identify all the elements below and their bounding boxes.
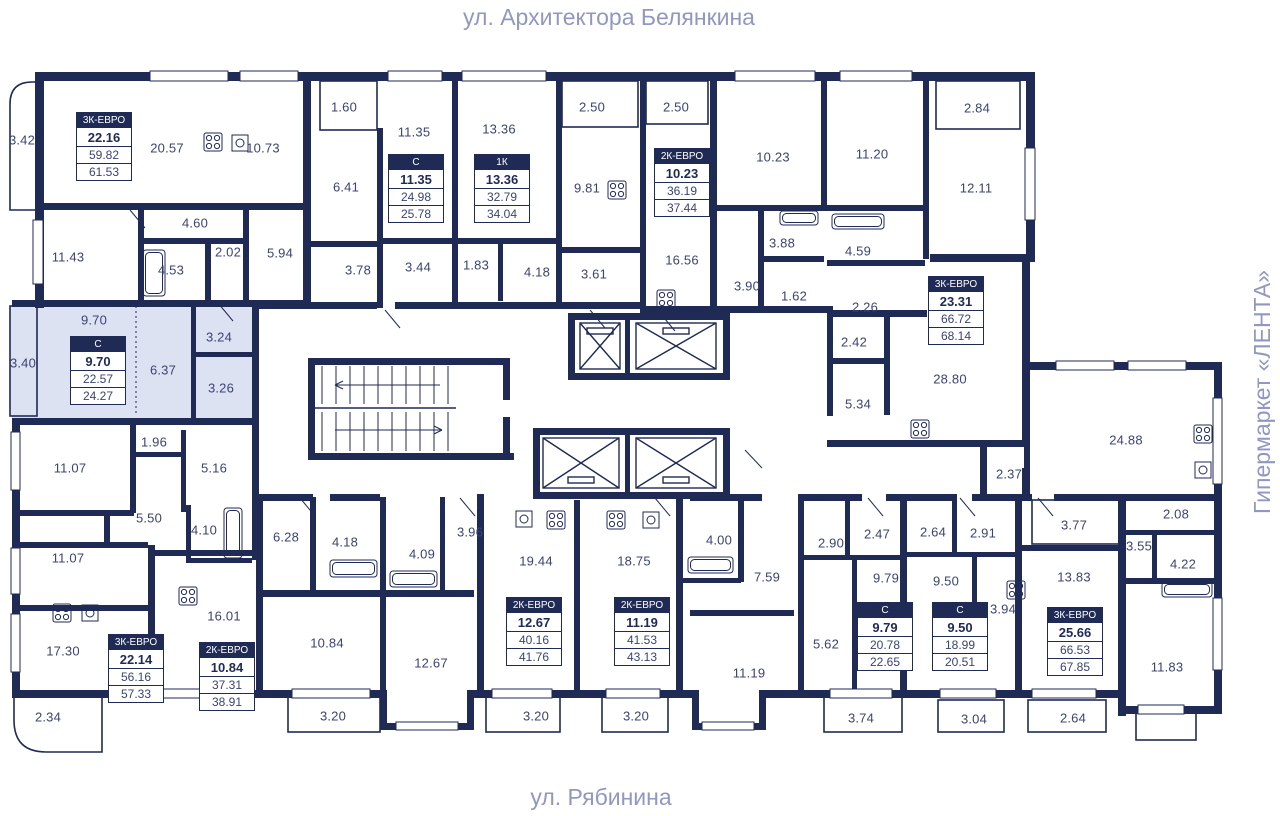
room-area-label: 3.96 — [457, 525, 483, 540]
room-area-label: 1.83 — [463, 258, 489, 273]
room-area-label: 10.84 — [310, 636, 344, 651]
room-area-label: 1.60 — [331, 100, 357, 115]
apartment-total-area: 57.33 — [109, 685, 163, 702]
apartment-living-area: 11.35 — [389, 170, 443, 188]
staircase — [315, 366, 456, 451]
apartment-card[interactable]: 3К-ЕВРО22.1456.1657.33 — [108, 634, 164, 703]
apartment-living-area: 23.31 — [929, 292, 983, 310]
room-area-label: 4.10 — [191, 523, 217, 538]
apartment-living-area: 13.36 — [475, 170, 529, 188]
room-area-label: 2.08 — [1163, 507, 1189, 522]
apartment-card[interactable]: С9.7920.7822.65 — [857, 602, 913, 671]
room-area-label: 6.37 — [150, 363, 176, 378]
room-area-label: 2.64 — [1060, 711, 1086, 726]
apartment-area: 40.16 — [507, 631, 561, 648]
room-area-label: 3.74 — [848, 711, 874, 726]
room-area-label: 7.59 — [754, 570, 780, 585]
room-area-label: 2.84 — [964, 101, 990, 116]
room-area-label: 11.43 — [52, 250, 85, 265]
room-area-label: 5.16 — [201, 461, 227, 476]
apartment-area: 18.99 — [933, 636, 987, 653]
room-area-label: 5.62 — [813, 637, 839, 652]
apartment-type: 2К-ЕВРО — [507, 598, 561, 613]
room-area-label: 2.50 — [579, 100, 605, 115]
room-area-label: 3.90 — [734, 279, 760, 294]
apartment-type: 3К-ЕВРО — [109, 635, 163, 650]
apartment-area: 41.53 — [615, 631, 669, 648]
room-area-label: 3.24 — [206, 330, 232, 345]
room-area-label: 3.55 — [1126, 539, 1152, 554]
room-area-label: 28.80 — [933, 372, 967, 387]
apartment-type: 3К-ЕВРО — [77, 113, 131, 128]
apartment-card[interactable]: 3К-ЕВРО25.6666.5367.85 — [1047, 607, 1103, 676]
apartment-total-area: 41.76 — [507, 648, 561, 665]
room-area-label: 4.18 — [524, 265, 550, 280]
apartment-area: 56.16 — [109, 668, 163, 685]
room-area-label: 11.07 — [54, 461, 87, 476]
room-area-label: 2.26 — [852, 300, 878, 315]
apartment-type: 2К-ЕВРО — [200, 643, 254, 658]
room-area-label: 4.53 — [158, 263, 184, 278]
apartment-living-area: 22.14 — [109, 650, 163, 668]
room-area-label: 9.50 — [933, 574, 959, 589]
room-area-label: 3.20 — [523, 709, 549, 724]
apartment-area: 20.78 — [858, 636, 912, 653]
apartment-type: 2К-ЕВРО — [615, 598, 669, 613]
apartment-type: 2К-ЕВРО — [655, 149, 709, 164]
apartment-card[interactable]: 2К-ЕВРО11.1941.5343.13 — [614, 597, 670, 666]
room-area-label: 18.75 — [617, 554, 651, 569]
street-label-bottom: ул. Рябинина — [530, 784, 671, 811]
apartment-living-area: 25.66 — [1048, 623, 1102, 641]
room-area-label: 19.44 — [519, 554, 553, 569]
room-area-label: 10.73 — [246, 141, 280, 156]
room-area-label: 3.44 — [405, 260, 431, 275]
apartment-living-area: 10.23 — [655, 164, 709, 182]
apartment-total-area: 67.85 — [1048, 658, 1102, 675]
room-area-label: 17.30 — [46, 644, 80, 659]
apartment-area: 66.72 — [929, 310, 983, 327]
room-area-label: 1.96 — [141, 435, 167, 450]
room-area-label: 4.60 — [182, 216, 208, 231]
apartment-area: 24.98 — [389, 188, 443, 205]
apartment-total-area: 20.51 — [933, 653, 987, 670]
apartment-card[interactable]: 2К-ЕВРО10.8437.3138.91 — [199, 642, 255, 711]
floor-plan — [0, 0, 1280, 816]
apartment-area: 22.57 — [71, 370, 125, 387]
room-area-label: 2.50 — [663, 100, 689, 115]
apartment-card[interactable]: С11.3524.9825.78 — [388, 154, 444, 223]
apartment-living-area: 22.16 — [77, 128, 131, 146]
room-area-label: 4.18 — [332, 535, 358, 550]
apartment-card[interactable]: 2К-ЕВРО10.2336.1937.44 — [654, 148, 710, 217]
room-area-label: 6.41 — [333, 180, 359, 195]
room-area-label: 5.50 — [136, 511, 162, 526]
apartment-total-area: 25.78 — [389, 205, 443, 222]
landmark-label-right: Гипермаркет «ЛЕНТА» — [1249, 270, 1276, 514]
room-area-label: 3.04 — [961, 712, 987, 727]
apartment-card-selected[interactable]: С9.7022.5724.27 — [70, 336, 126, 405]
room-area-label: 3.77 — [1061, 518, 1087, 533]
apartment-total-area: 38.91 — [200, 693, 254, 710]
room-area-label: 3.42 — [9, 133, 35, 148]
room-area-label: 3.20 — [623, 709, 649, 724]
room-area-label: 9.81 — [574, 181, 600, 196]
room-area-label: 3.94 — [990, 602, 1016, 617]
room-area-label: 9.79 — [873, 571, 899, 586]
room-area-label: 13.36 — [482, 122, 516, 137]
room-area-label: 3.78 — [345, 263, 371, 278]
room-area-label: 1.62 — [781, 289, 807, 304]
apartment-type: 1К — [475, 155, 529, 170]
apartment-card[interactable]: 3К-ЕВРО22.1659.8261.53 — [76, 112, 132, 181]
room-area-label: 11.07 — [52, 551, 85, 566]
room-area-label: 3.26 — [208, 381, 234, 396]
room-area-label: 6.28 — [273, 530, 299, 545]
room-area-label: 5.34 — [845, 397, 871, 412]
room-area-label: 16.56 — [665, 253, 699, 268]
apartment-card[interactable]: С9.5018.9920.51 — [932, 602, 988, 671]
apartment-type: 3К-ЕВРО — [929, 277, 983, 292]
apartment-type: С — [71, 337, 125, 352]
room-area-label: 11.19 — [733, 666, 766, 681]
apartment-area: 32.79 — [475, 188, 529, 205]
apartment-total-area: 34.04 — [475, 205, 529, 222]
room-area-label: 4.00 — [706, 533, 732, 548]
apartment-total-area: 22.65 — [858, 653, 912, 670]
room-area-label: 13.83 — [1057, 570, 1091, 585]
floor-plan-page: ул. Архитектора Белянкина ул. Рябинина Г… — [0, 0, 1280, 816]
room-area-label: 2.34 — [35, 710, 61, 725]
apartment-living-area: 9.50 — [933, 618, 987, 636]
room-area-label: 2.47 — [864, 527, 890, 542]
room-area-label: 10.23 — [756, 150, 790, 165]
apartment-total-area: 61.53 — [77, 163, 131, 180]
apartment-card[interactable]: 1К13.3632.7934.04 — [474, 154, 530, 223]
apartment-area: 59.82 — [77, 146, 131, 163]
room-area-label: 11.83 — [1151, 660, 1184, 675]
room-area-label: 2.90 — [818, 536, 844, 551]
street-label-top: ул. Архитектора Белянкина — [463, 4, 755, 31]
room-area-label: 11.35 — [398, 125, 431, 140]
room-area-label: 2.02 — [215, 245, 241, 260]
room-area-label: 3.88 — [769, 236, 795, 251]
apartment-living-area: 10.84 — [200, 658, 254, 676]
room-area-label: 3.20 — [320, 709, 346, 724]
room-area-label: 9.70 — [81, 313, 107, 328]
room-area-label: 3.40 — [10, 356, 36, 371]
room-area-label: 3.61 — [581, 267, 607, 282]
room-area-label: 2.37 — [996, 467, 1022, 482]
apartment-card[interactable]: 3К-ЕВРО23.3166.7268.14 — [928, 276, 984, 345]
apartment-living-area: 12.67 — [507, 613, 561, 631]
apartment-total-area: 68.14 — [929, 327, 983, 344]
apartment-type: С — [933, 603, 987, 618]
apartment-total-area: 43.13 — [615, 648, 669, 665]
apartment-living-area: 9.70 — [71, 352, 125, 370]
apartment-living-area: 11.19 — [615, 613, 669, 631]
room-area-label: 4.59 — [845, 244, 871, 259]
room-area-label: 4.22 — [1170, 557, 1196, 572]
room-area-label: 12.11 — [960, 181, 993, 196]
apartment-type: 3К-ЕВРО — [1048, 608, 1102, 623]
room-area-label: 24.88 — [1109, 433, 1143, 448]
room-area-label: 2.42 — [841, 335, 867, 350]
apartment-area: 66.53 — [1048, 641, 1102, 658]
room-area-label: 2.64 — [920, 525, 946, 540]
apartment-total-area: 37.44 — [655, 199, 709, 216]
room-area-label: 4.09 — [409, 547, 435, 562]
room-area-label: 20.57 — [150, 141, 184, 156]
apartment-area: 37.31 — [200, 676, 254, 693]
apartment-type: С — [858, 603, 912, 618]
apartment-type: С — [389, 155, 443, 170]
room-area-label: 5.94 — [267, 246, 293, 261]
apartment-living-area: 9.79 — [858, 618, 912, 636]
room-area-label: 11.20 — [856, 147, 889, 162]
apartment-area: 36.19 — [655, 182, 709, 199]
apartment-card[interactable]: 2К-ЕВРО12.6740.1641.76 — [506, 597, 562, 666]
room-area-label: 2.91 — [970, 526, 996, 541]
apartment-total-area: 24.27 — [71, 387, 125, 404]
room-area-label: 12.67 — [414, 656, 448, 671]
room-area-label: 16.01 — [207, 609, 241, 624]
